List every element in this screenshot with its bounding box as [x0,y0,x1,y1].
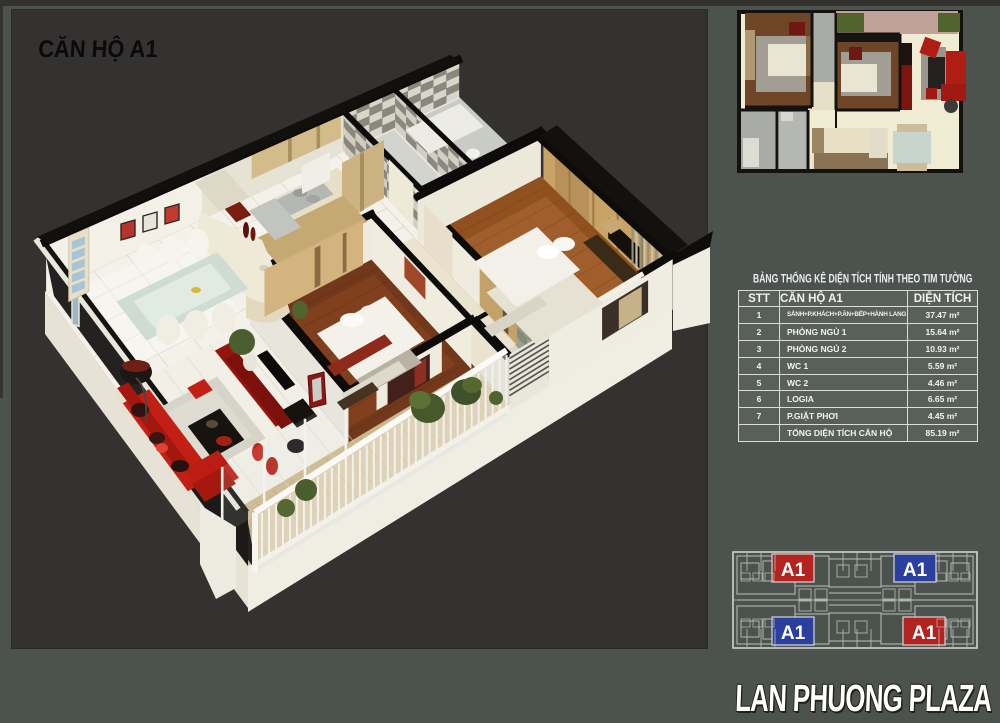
svg-text:A1: A1 [912,623,937,644]
svg-text:A1: A1 [781,623,806,644]
svg-text:A1: A1 [903,560,928,581]
svg-text:A1: A1 [781,560,806,581]
